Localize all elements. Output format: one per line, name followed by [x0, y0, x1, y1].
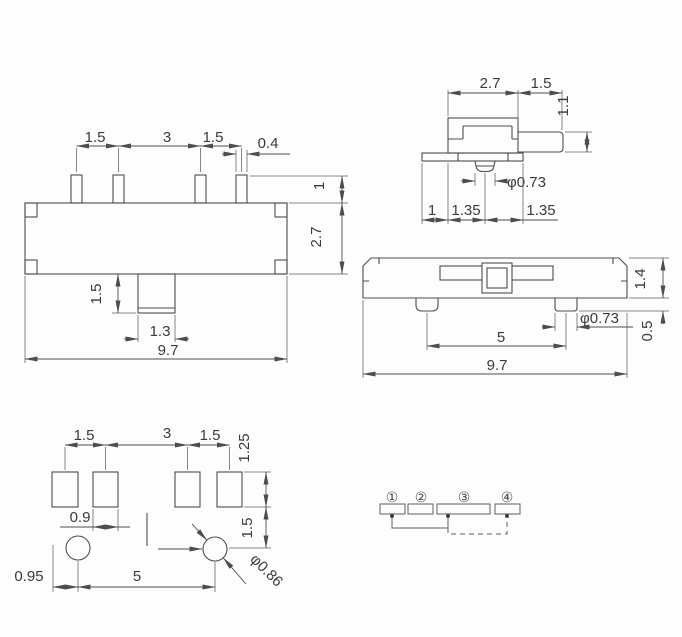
dim-pin-height: 1 [311, 182, 328, 190]
dim-pin-pitch-3: 1.5 [203, 129, 224, 146]
pin-number-3: ③ [458, 489, 471, 505]
pin-number-1: ① [386, 489, 399, 505]
pin-number-4: ④ [501, 489, 514, 505]
dim-body-width: 9.7 [158, 342, 179, 359]
dim-actuator-height: 1.1 [555, 96, 572, 117]
dim-bottom-body-width: 9.7 [487, 357, 508, 374]
dim-post-offset-left: 1.35 [451, 202, 480, 219]
dim-pad-pitch-3: 1.5 [200, 427, 221, 444]
dim-pad-pitch-1: 1.5 [74, 427, 95, 444]
dim-pin-pitch-2: 3 [163, 129, 171, 146]
dim-pad-height: 1.25 [236, 433, 253, 462]
dim-pad-pitch-2: 3 [163, 425, 171, 442]
dim-post-spacing: 5 [497, 329, 505, 346]
dim-pin-pitch-1: 1.5 [85, 129, 106, 146]
dim-body-height: 2.7 [308, 227, 325, 248]
dim-post-offset-right: 1.35 [526, 202, 555, 219]
dim-post-diameter-side: φ0.73 [507, 174, 546, 191]
dim-hole-spacing: 5 [133, 568, 141, 585]
slide-switch-dimensional-drawing: 1.5 3 1.5 0.4 1 2.7 1.5 1 [0, 0, 682, 637]
dim-pad-width: 0.9 [70, 509, 91, 526]
dim-knob-width: 1.3 [150, 323, 171, 340]
dim-edge-to-hole: 0.95 [14, 568, 43, 585]
dim-actuator-length: 1.5 [531, 75, 552, 92]
dim-post-height: 0.5 [639, 321, 656, 342]
dim-body-thickness: 1.4 [632, 269, 649, 290]
dim-knob-height: 1.5 [88, 284, 105, 305]
dim-body-depth: 2.7 [480, 75, 501, 92]
dim-pin-width: 0.4 [258, 135, 279, 152]
technical-drawing-page: 1.5 3 1.5 0.4 1 2.7 1.5 1 [0, 0, 682, 637]
dim-pad-to-hole: 1.5 [239, 518, 256, 539]
dim-flange-offset: 1 [428, 202, 436, 219]
dim-post-diameter-bottom: φ0.73 [580, 310, 619, 327]
pin-number-2: ② [415, 489, 428, 505]
